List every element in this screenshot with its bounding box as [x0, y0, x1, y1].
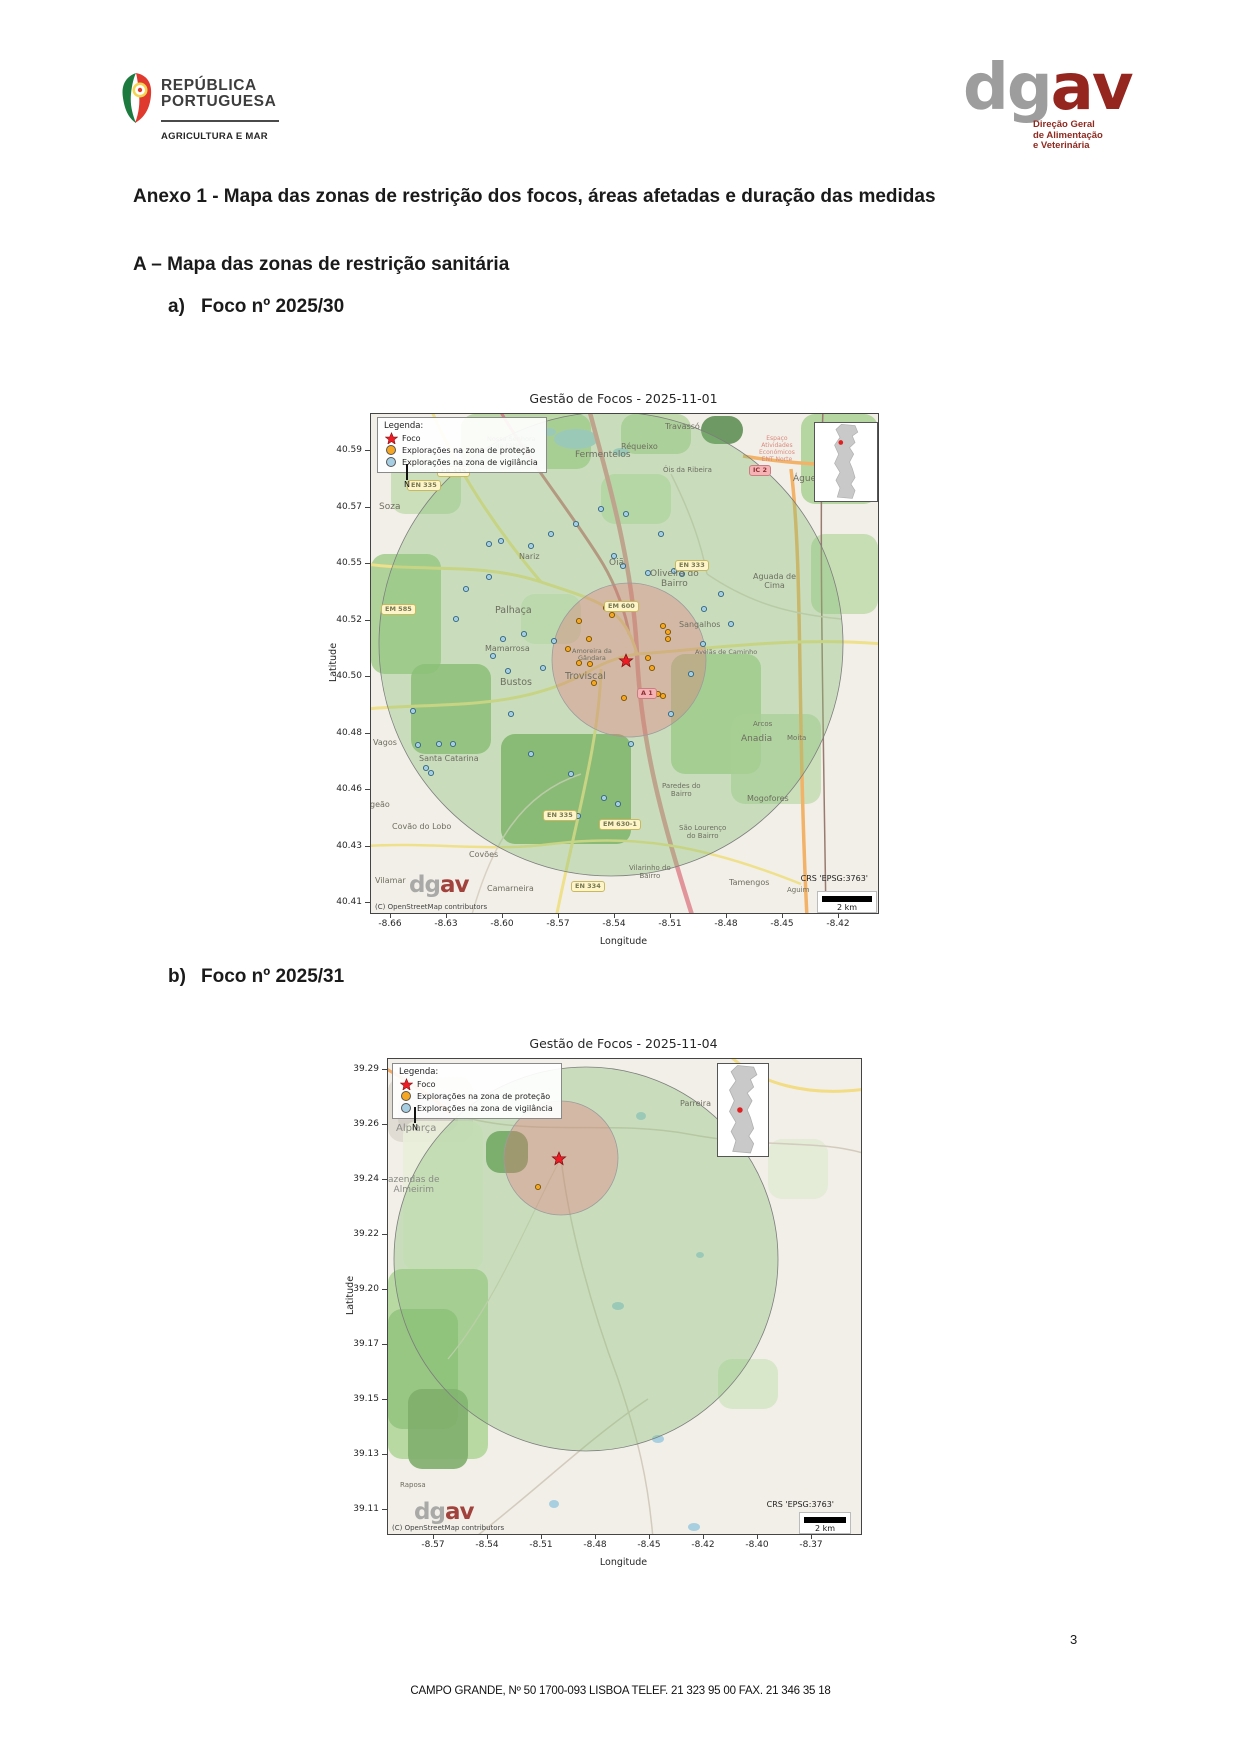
y-tick-label: 40.48: [318, 728, 362, 738]
crs-label: CRS 'EPSG:3763': [767, 1500, 834, 1509]
protection-farm-dot: [609, 612, 614, 617]
map-place-label: Sangalhos: [679, 620, 720, 629]
map-place-label: Tamengos: [729, 878, 769, 887]
y-tick-label: 39.17: [335, 1339, 379, 1349]
protection-farm-dot: [535, 1184, 540, 1189]
legend-item: Explorações na zona de vigilância: [399, 1102, 553, 1114]
surveillance-farm-dot: [498, 538, 503, 543]
surveillance-farm-dot: [548, 531, 553, 536]
map-place-label: Aguada de Cima: [753, 572, 796, 590]
y-tick-label: 40.43: [318, 841, 362, 851]
surveillance-farm-dot: [700, 641, 705, 646]
surveillance-farm-dot: [486, 574, 491, 579]
map-place-label: Moita: [787, 734, 806, 742]
map-place-label: Vilamar: [375, 876, 406, 885]
legend-item: Explorações na zona de proteção: [399, 1090, 553, 1102]
surveillance-farm-dot: [551, 638, 556, 643]
map-place-label: Arcos: [753, 720, 772, 728]
legend-star-icon: [385, 432, 398, 444]
surveillance-farm-dot: [415, 742, 420, 747]
surveillance-farm-dot: [568, 771, 573, 776]
portugal-inset-map: [814, 422, 878, 502]
road-badge: EM 585: [381, 604, 416, 615]
scale-bar-line: [822, 896, 872, 902]
map-canvas: [388, 1059, 861, 1534]
legend-item: Foco: [399, 1078, 553, 1090]
item-b-marker: b): [168, 966, 201, 988]
map-place-label: Parreira: [680, 1099, 711, 1108]
surveillance-farm-dot: [423, 765, 428, 770]
protection-farm-dot: [621, 695, 626, 700]
road-badge: A 1: [637, 688, 657, 699]
portugal-silhouette: [730, 1066, 757, 1153]
surveillance-farm-dot: [573, 521, 578, 526]
gov-logo-subtitle: AGRICULTURA E MAR: [161, 131, 279, 142]
surveillance-farm-dot: [658, 531, 663, 536]
map-place-label: Óis da Ribeira: [663, 466, 712, 474]
surveillance-farm-dot: [615, 801, 620, 806]
item-a-heading: a)Foco nº 2025/30: [168, 296, 344, 318]
x-tick-label: -8.54: [589, 919, 639, 929]
y-tick-label: 40.55: [318, 558, 362, 568]
map-place-label: Mamarrosa: [485, 644, 530, 653]
protection-farm-dot: [660, 693, 665, 698]
protection-farm-dot: [645, 655, 650, 660]
x-tick-label: -8.60: [477, 919, 527, 929]
x-tick-label: -8.37: [786, 1540, 836, 1550]
surveillance-farm-dot: [486, 541, 491, 546]
x-tick-label: -8.57: [533, 919, 583, 929]
map-place-label: Fermentelos: [575, 450, 631, 460]
surveillance-farm-dot: [598, 506, 603, 511]
map-place-label: Raposa: [400, 1481, 426, 1489]
map-place-label: Travassó: [665, 422, 700, 431]
x-tick-label: -8.45: [757, 919, 807, 929]
portugal-silhouette: [835, 424, 858, 498]
x-tick-label: -8.51: [645, 919, 695, 929]
protection-farm-dot: [586, 636, 591, 641]
legend-item-label: Foco: [402, 434, 421, 443]
map-place-label: Aguim: [787, 886, 809, 894]
y-tick-label: 39.11: [335, 1504, 379, 1514]
inset-focus-dot: [838, 440, 843, 445]
y-tick-label: 39.20: [335, 1284, 379, 1294]
road-badge: IC 2: [749, 465, 771, 476]
y-tick-label: 40.57: [318, 502, 362, 512]
north-label: N: [409, 1123, 421, 1132]
inset-focus-dot: [737, 1107, 743, 1113]
map-place-label: Avelãs de Caminho: [695, 649, 757, 656]
road-badge: EN 334: [571, 881, 605, 892]
road-badge: EM 630-1: [599, 819, 641, 830]
map-place-label: Covões: [469, 850, 498, 859]
surveillance-farm-dot: [528, 751, 533, 756]
map-place-label: Bustos: [500, 678, 532, 689]
legend-protection-dot-icon: [386, 445, 396, 455]
surveillance-farm-dot: [528, 543, 533, 548]
surveillance-farm-dot: [628, 741, 633, 746]
protection-farm-dot: [649, 665, 654, 670]
osm-copyright: (C) OpenStreetMap contributors: [392, 1524, 504, 1532]
x-axis-label: Longitude: [387, 1557, 860, 1568]
surveillance-farm-dot: [601, 795, 606, 800]
road-badge: EN 333: [675, 560, 709, 571]
page-title: Anexo 1 - Mapa das zonas de restrição do…: [133, 186, 936, 208]
map-place-label: Espaço Atividades Económicos ENT Norte: [759, 436, 795, 464]
surveillance-farm-dot: [410, 708, 415, 713]
map-place-label: Palhaça: [495, 606, 532, 617]
x-tick-label: -8.42: [813, 919, 863, 929]
x-tick-label: -8.42: [678, 1540, 728, 1550]
y-tick-label: 39.15: [335, 1394, 379, 1404]
section-a-heading: A – Mapa das zonas de restrição sanitári…: [133, 254, 509, 276]
legend-title: Legenda:: [399, 1067, 553, 1077]
surveillance-farm-dot: [668, 711, 673, 716]
map-place-label: Oliveira do Bairro: [650, 569, 699, 590]
scale-bar-line: [804, 1517, 846, 1523]
surveillance-farm-dot: [728, 621, 733, 626]
scale-bar: 2 km: [799, 1512, 851, 1534]
gov-logo-line1: REPÚBLICA: [161, 78, 279, 94]
legend-title: Legenda:: [384, 421, 538, 431]
x-tick-label: -8.63: [421, 919, 471, 929]
dgav-wordmark: dgav: [963, 58, 1123, 118]
map-place-label: Oiã: [609, 558, 624, 568]
x-axis-label: Longitude: [370, 936, 877, 947]
map-place-label: Anadia: [741, 734, 772, 744]
item-a-label: Foco nº 2025/30: [201, 296, 344, 317]
x-tick-label: -8.45: [624, 1540, 674, 1550]
map-place-label: Vagos: [373, 738, 397, 747]
scale-bar-label: 2 km: [818, 903, 876, 912]
map-figure-foco-2025-30: Gestão de Focos - 2025-11-01Latitude40.5…: [306, 383, 891, 943]
protection-farm-dot: [660, 623, 665, 628]
dgav-watermark: dgav: [414, 1499, 473, 1525]
map-place-label: Nariz: [519, 552, 540, 561]
legend-item: Explorações na zona de proteção: [384, 444, 538, 456]
north-arrow-icon: N: [401, 464, 413, 489]
y-tick-label: 39.26: [335, 1119, 379, 1129]
surveillance-farm-dot: [521, 631, 526, 636]
legend-item-label: Explorações na zona de vigilância: [417, 1104, 553, 1113]
surveillance-farm-dot: [688, 671, 693, 676]
map-place-label: Covão do Lobo: [392, 822, 451, 831]
road-badge: EM 600: [604, 601, 639, 612]
dgav-logo: dgav Direção Geralde Alimentaçãoe Veteri…: [963, 58, 1123, 152]
gov-logo-divider: [161, 120, 279, 122]
map-place-label: Santa Catarina: [419, 754, 479, 763]
legend-item-label: Explorações na zona de vigilância: [402, 458, 538, 467]
map-place-label: São Lourenço do Bairro: [679, 824, 726, 840]
y-tick-label: 40.41: [318, 897, 362, 907]
page-number: 3: [1070, 1632, 1077, 1647]
protection-farm-dot: [565, 646, 570, 651]
item-b-label: Foco nº 2025/31: [201, 966, 344, 987]
dgav-watermark: dgav: [409, 872, 468, 898]
map-plot-area: AlpiarçaParreiraazendas de AlmeirimRapos…: [387, 1058, 862, 1535]
legend-surveillance-dot-icon: [386, 457, 396, 467]
portugal-inset-map: [717, 1063, 769, 1157]
y-tick-label: 40.46: [318, 784, 362, 794]
legend-item: Foco: [384, 432, 538, 444]
x-tick-label: -8.54: [462, 1540, 512, 1550]
x-tick-label: -8.66: [365, 919, 415, 929]
y-tick-label: 40.50: [318, 671, 362, 681]
protection-farm-dot: [576, 618, 581, 623]
map-place-label: Paredes do Bairro: [662, 782, 701, 798]
x-tick-label: -8.48: [701, 919, 751, 929]
surveillance-farm-dot: [718, 591, 723, 596]
map-place-label: Soza: [379, 502, 400, 512]
y-axis-label: Latitude: [345, 1275, 356, 1314]
surveillance-farm-dot: [453, 616, 458, 621]
surveillance-farm-dot: [450, 741, 455, 746]
map-place-label: Amoreira da Gândara: [572, 648, 612, 663]
north-arrow-icon: N: [409, 1107, 421, 1132]
surveillance-farm-dot: [701, 606, 706, 611]
item-a-marker: a): [168, 296, 201, 318]
map-place-label: Vilarinho do Bairro: [629, 864, 671, 880]
y-tick-label: 39.13: [335, 1449, 379, 1459]
surveillance-farm-dot: [463, 586, 468, 591]
y-tick-label: 40.52: [318, 615, 362, 625]
y-tick-label: 39.24: [335, 1174, 379, 1184]
x-tick-label: -8.51: [516, 1540, 566, 1550]
map-place-label: Camarneira: [487, 884, 534, 893]
y-tick-label: 39.22: [335, 1229, 379, 1239]
protection-farm-dot: [665, 636, 670, 641]
legend-item-label: Foco: [417, 1080, 436, 1089]
item-b-heading: b)Foco nº 2025/31: [168, 966, 344, 988]
map-plot-area: TravassóRéqueixoÓis da RibeiraFermentelo…: [370, 413, 879, 914]
osm-copyright: (C) OpenStreetMap contributors: [375, 903, 487, 911]
map-title: Gestão de Focos - 2025-11-01: [370, 391, 877, 406]
map-title: Gestão de Focos - 2025-11-04: [387, 1036, 860, 1051]
surveillance-farm-dot: [540, 665, 545, 670]
north-label: N: [401, 480, 413, 489]
surveillance-farm-dot: [500, 636, 505, 641]
road-badge: EN 335: [543, 810, 577, 821]
surveillance-farm-dot: [490, 653, 495, 658]
scale-bar: 2 km: [817, 891, 877, 913]
scale-bar-label: 2 km: [800, 1524, 850, 1533]
legend-item-label: Explorações na zona de proteção: [417, 1092, 550, 1101]
surveillance-farm-dot: [623, 511, 628, 516]
surveillance-farm-dot: [436, 741, 441, 746]
document-page: REPÚBLICA PORTUGUESA AGRICULTURA E MAR d…: [0, 0, 1241, 1755]
y-tick-label: 39.29: [335, 1064, 379, 1074]
legend-protection-dot-icon: [401, 1091, 411, 1101]
legend-star-icon: [400, 1078, 413, 1090]
map-place-label: Mogofores: [747, 794, 789, 803]
map-place-label: geão: [370, 800, 390, 809]
protection-farm-dot: [665, 629, 670, 634]
surveillance-farm-dot: [428, 770, 433, 775]
surveillance-farm-dot: [508, 711, 513, 716]
x-tick-label: -8.48: [570, 1540, 620, 1550]
map-canvas: [371, 414, 878, 913]
footer-address: CAMPO GRANDE, Nº 50 1700-093 LISBOA TELE…: [0, 1685, 1241, 1697]
map-place-label: azendas de Almeirim: [388, 1175, 440, 1196]
y-tick-label: 40.59: [318, 445, 362, 455]
x-tick-label: -8.57: [408, 1540, 458, 1550]
map-figure-foco-2025-31: Gestão de Focos - 2025-11-04Latitude39.2…: [320, 1028, 880, 1568]
gov-logo-line2: PORTUGUESA: [161, 94, 279, 110]
map-place-label: Troviscal: [565, 672, 606, 683]
portugal-flag-emblem-icon: [117, 71, 155, 125]
legend-item-label: Explorações na zona de proteção: [402, 446, 535, 455]
crs-label: CRS 'EPSG:3763': [801, 874, 868, 883]
x-tick-label: -8.40: [732, 1540, 782, 1550]
surveillance-farm-dot: [505, 668, 510, 673]
